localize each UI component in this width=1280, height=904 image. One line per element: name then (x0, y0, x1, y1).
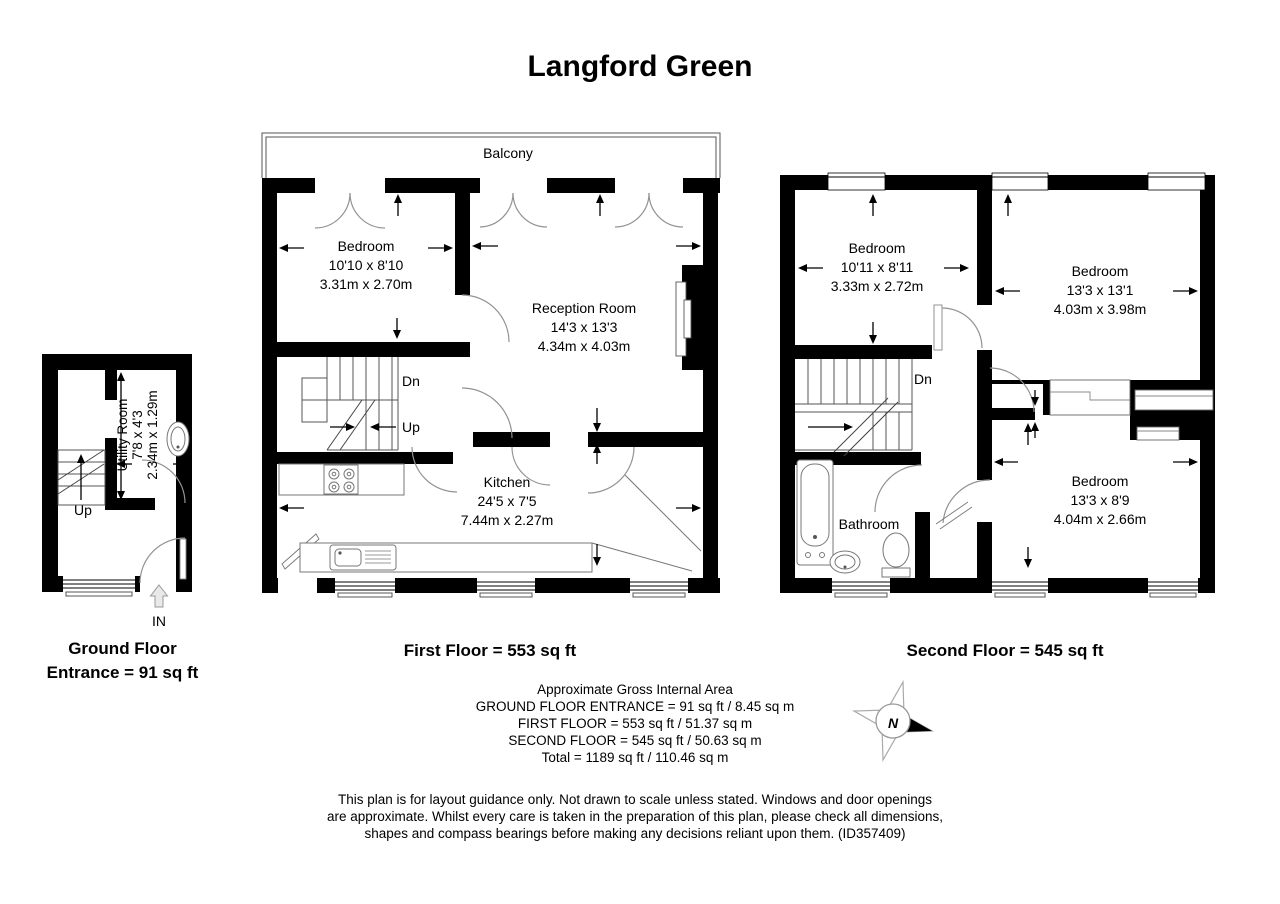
utility-room-imperial: 7'8 x 4'3 (130, 410, 145, 459)
disclaimer-line2: are approximate. Whilst every care is ta… (290, 808, 980, 825)
bedroom-label: Bedroom (338, 238, 395, 254)
reception-label: Reception Room (532, 300, 636, 316)
reception-metric: 4.34m x 4.03m (538, 338, 631, 354)
basin-icon (830, 551, 860, 573)
ground-up-label: Up (74, 502, 92, 518)
kitchen-imperial: 24'5 x 7'5 (477, 493, 536, 509)
reception-imperial: 14'3 x 13'3 (551, 319, 618, 335)
first-walls (262, 178, 720, 593)
ground-walls (42, 354, 192, 592)
toilet-icon (882, 533, 910, 577)
first-floor-plan: Balcony Bedroom 10'10 x 8'10 3.31m x 2.7… (258, 130, 724, 596)
ground-floor-caption-line2: Entrance = 91 sq ft (15, 661, 230, 685)
second-dn-label: Dn (914, 371, 932, 387)
first-up-label: Up (402, 419, 420, 435)
balcony-door-openings (315, 178, 683, 193)
in-label: IN (152, 613, 166, 629)
area-summary-heading: Approximate Gross Internal Area (385, 681, 885, 698)
kitchen-metric: 7.44m x 2.27m (461, 512, 554, 528)
bedroom1-imperial: 10'11 x 8'11 (841, 259, 914, 275)
area-summary-second: SECOND FLOOR = 545 sq ft / 50.63 sq m (385, 732, 885, 749)
compass-icon: N (845, 683, 945, 768)
ground-floor-caption-line1: Ground Floor (15, 637, 230, 661)
disclaimer-line3: shapes and compass bearings before makin… (290, 825, 980, 842)
kitchen-label: Kitchen (484, 474, 531, 490)
utility-room-label: Utility Room (115, 399, 130, 472)
ground-floor-caption: Ground Floor Entrance = 91 sq ft (15, 637, 230, 685)
area-summary-ground: GROUND FLOOR ENTRANCE = 91 sq ft / 8.45 … (385, 698, 885, 715)
first-dn-label: Dn (402, 373, 420, 389)
floorplan-page: Langford Green (0, 0, 1280, 904)
bedroom3-imperial: 13'3 x 8'9 (1070, 492, 1129, 508)
second-stairs-icon (795, 359, 912, 456)
utility-sink-icon (167, 422, 189, 456)
ground-window (63, 576, 135, 596)
second-floor-caption: Second Floor = 545 sq ft (855, 639, 1155, 663)
bathroom-label: Bathroom (839, 516, 900, 532)
page-title: Langford Green (0, 50, 1280, 84)
bedroom2-imperial: 13'3 x 13'1 (1067, 282, 1134, 298)
bedroom3-metric: 4.04m x 2.66m (1054, 511, 1147, 527)
in-arrow-icon (151, 585, 168, 607)
bedroom2-label: Bedroom (1072, 263, 1129, 279)
utility-room-metric: 2.34m x 1.29m (145, 390, 160, 479)
compass-north-label: N (888, 715, 899, 731)
kitchen-sink-icon (330, 545, 396, 570)
bedroom-imperial: 10'10 x 8'10 (329, 257, 404, 273)
first-stairs-icon (302, 357, 398, 450)
ground-floor-plan: Utility Room 7'8 x 4'3 2.34m x 1.29m Up … (40, 350, 205, 632)
area-summary: Approximate Gross Internal Area GROUND F… (385, 681, 885, 766)
bedroom1-metric: 3.33m x 2.72m (831, 278, 924, 294)
disclaimer-line1: This plan is for layout guidance only. N… (290, 791, 980, 808)
first-stairs-arrows (330, 423, 396, 431)
second-floor-plan: Bedroom 10'11 x 8'11 3.33m x 2.72m Bedro… (778, 172, 1218, 598)
balcony-door-arcs (315, 193, 683, 228)
balcony-label: Balcony (483, 145, 533, 161)
area-summary-first: FIRST FLOOR = 553 sq ft / 51.37 sq m (385, 715, 885, 732)
bath-icon (797, 460, 833, 565)
first-floor-caption: First Floor = 553 sq ft (330, 639, 650, 663)
disclaimer: This plan is for layout guidance only. N… (290, 791, 980, 842)
area-summary-total: Total = 1189 sq ft / 110.46 sq m (385, 749, 885, 766)
second-top-windows (828, 173, 1205, 190)
bedroom3-label: Bedroom (1072, 473, 1129, 489)
ground-stairs-icon (58, 450, 105, 505)
bedroom1-label: Bedroom (849, 240, 906, 256)
bedroom2-metric: 4.03m x 3.98m (1054, 301, 1147, 317)
bedroom-metric: 3.31m x 2.70m (320, 276, 413, 292)
